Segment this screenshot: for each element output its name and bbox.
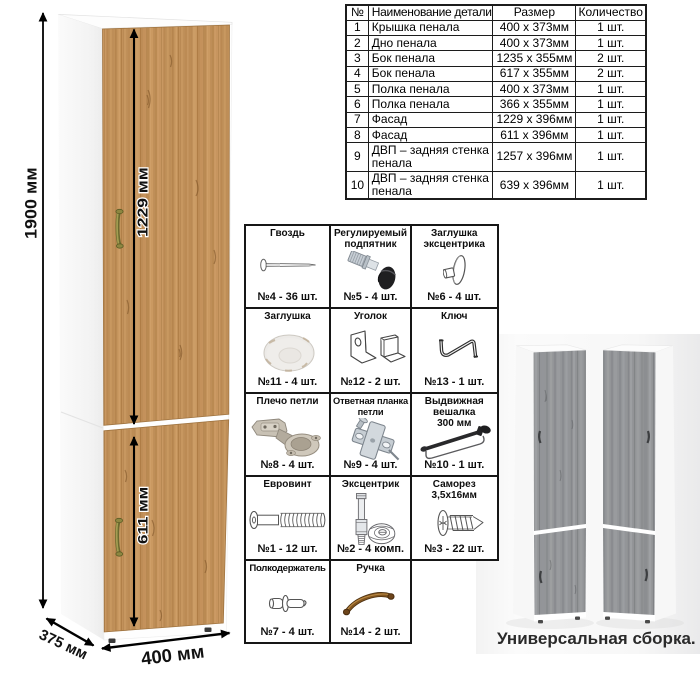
svg-text:400 мм: 400 мм: [140, 640, 205, 669]
svg-text:375 мм: 375 мм: [36, 626, 90, 663]
svg-text:1229 мм: 1229 мм: [136, 167, 151, 237]
svg-text:611 мм: 611 мм: [136, 487, 151, 544]
svg-text:1900 мм: 1900 мм: [21, 167, 40, 239]
